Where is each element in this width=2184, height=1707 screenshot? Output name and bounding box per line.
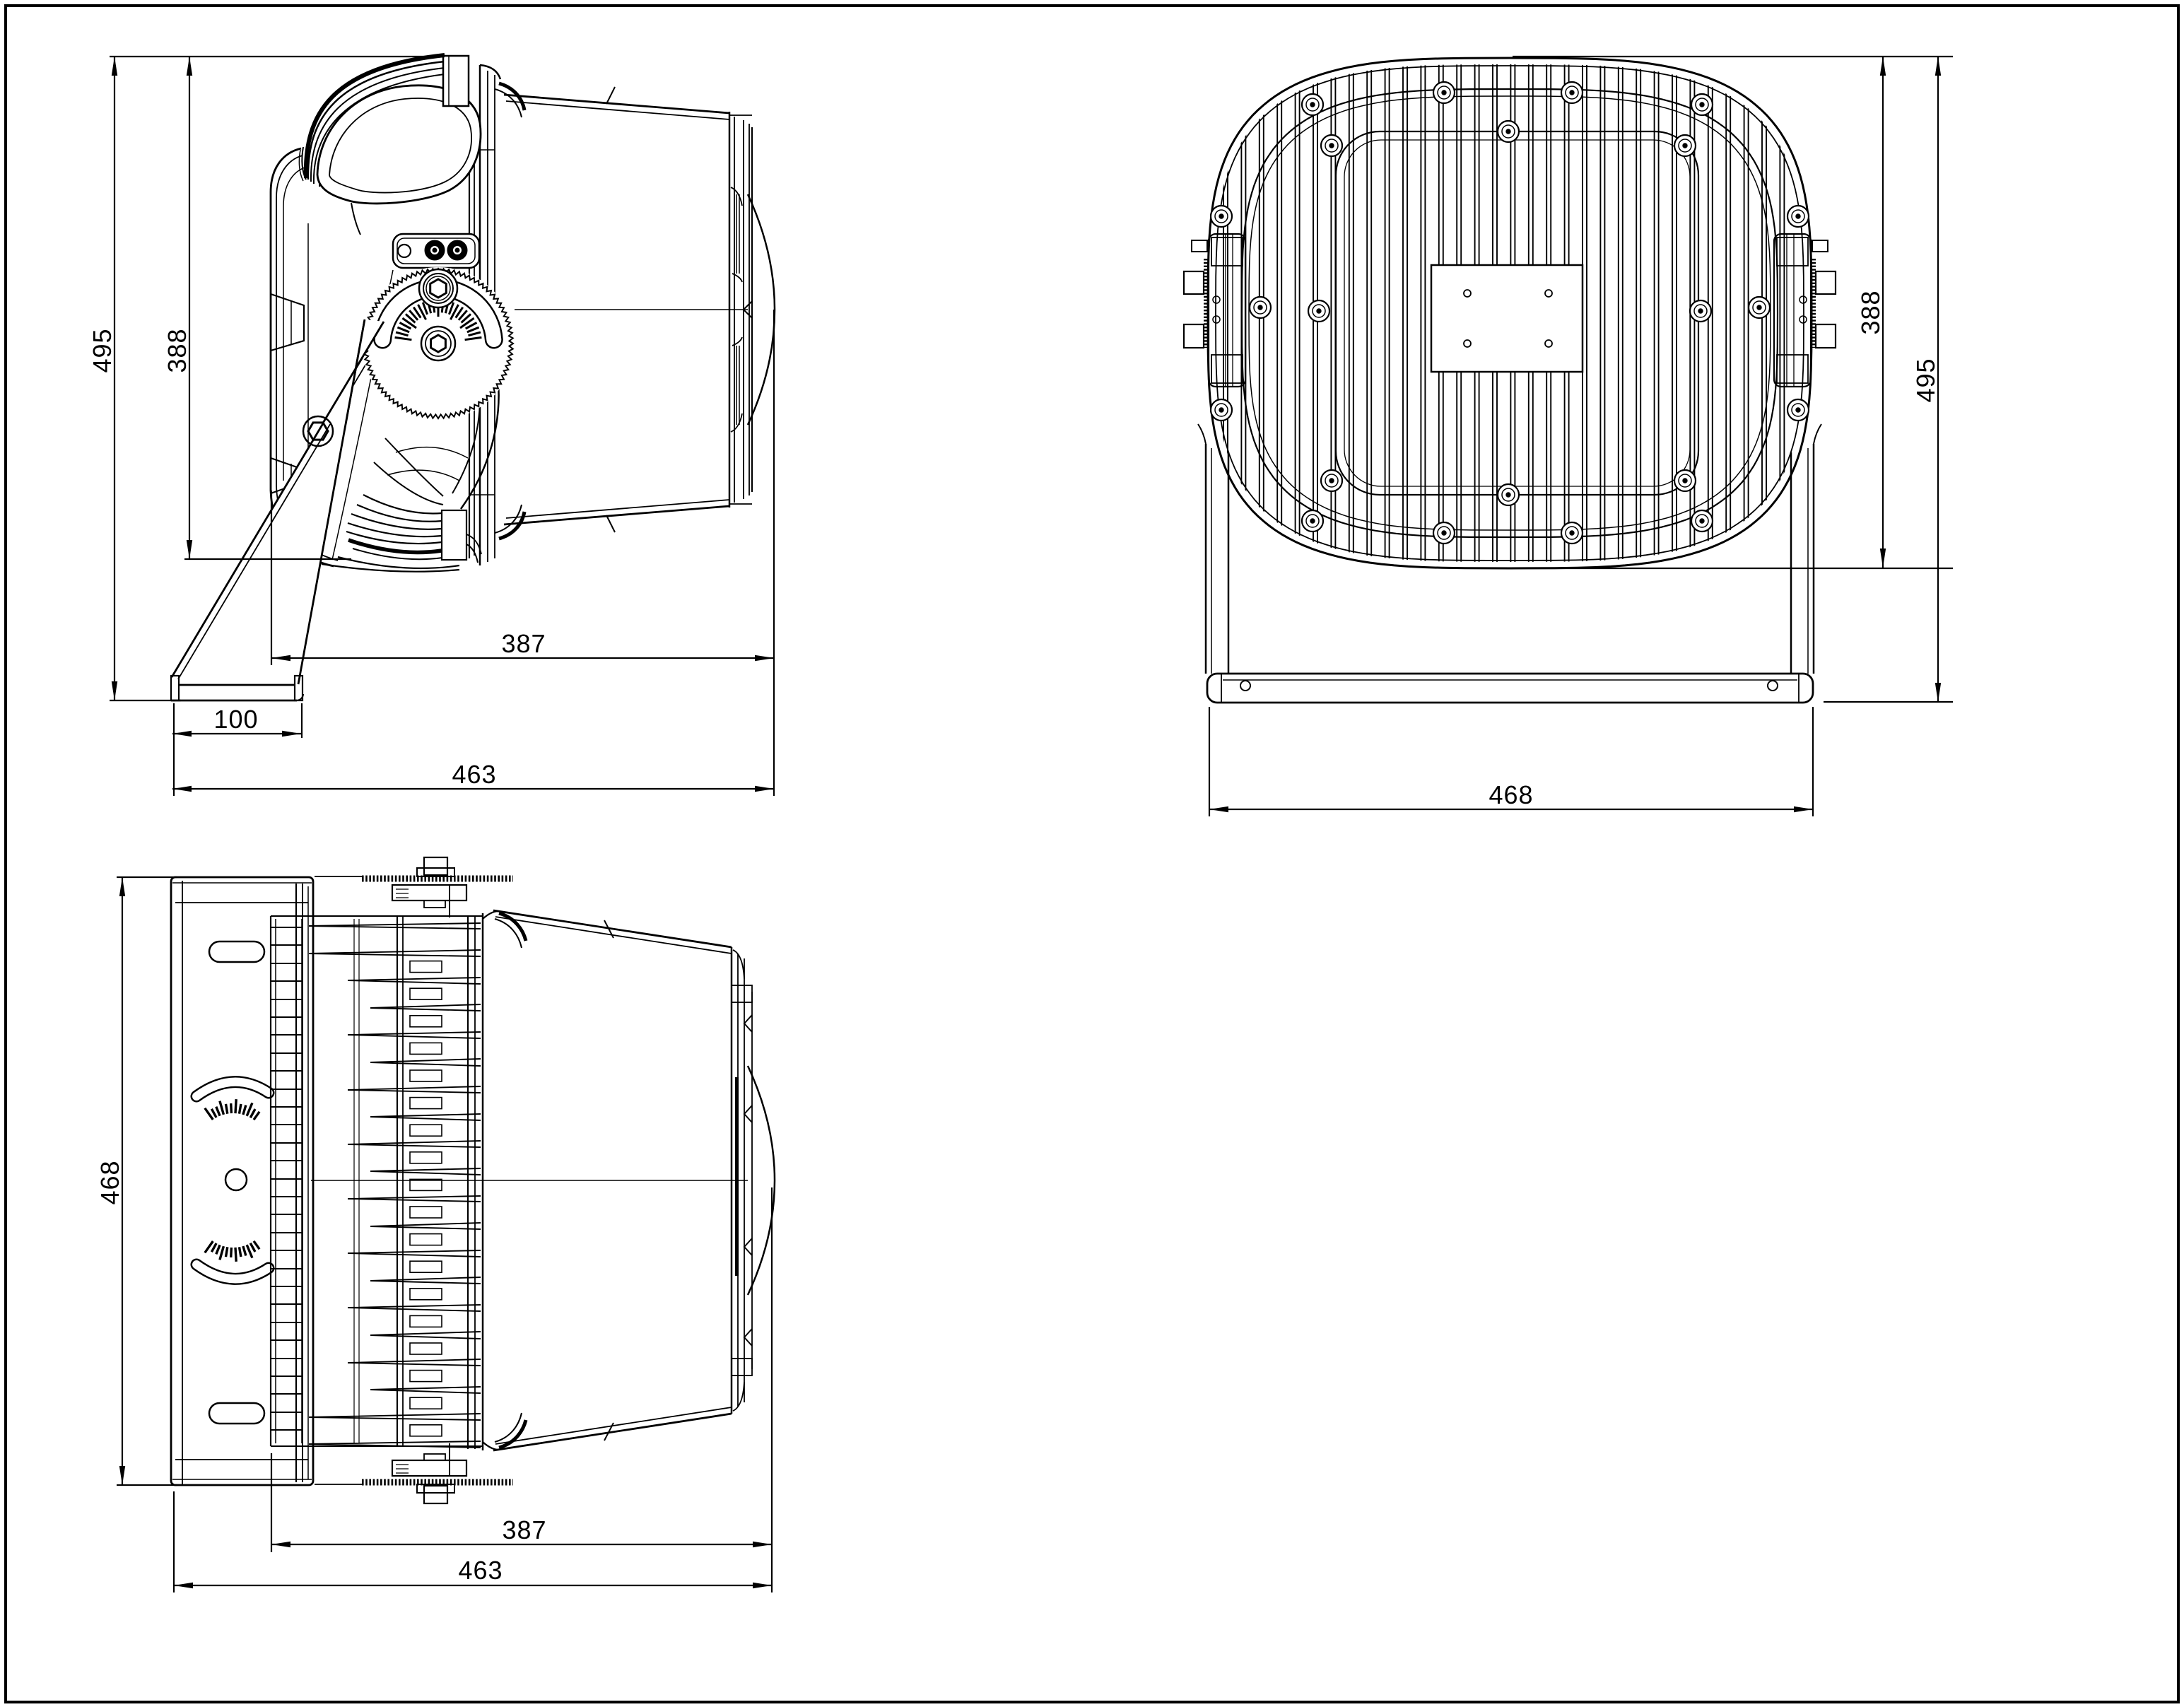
svg-text:495: 495: [1911, 358, 1940, 402]
svg-text:387: 387: [501, 629, 546, 658]
svg-text:463: 463: [458, 1556, 503, 1585]
svg-text:100: 100: [213, 705, 258, 734]
svg-text:495: 495: [88, 328, 117, 373]
svg-text:388: 388: [1856, 290, 1885, 334]
svg-text:468: 468: [1489, 780, 1533, 809]
svg-text:463: 463: [452, 760, 496, 789]
svg-text:468: 468: [95, 1160, 124, 1204]
svg-text:387: 387: [502, 1515, 546, 1544]
svg-text:388: 388: [163, 328, 192, 373]
